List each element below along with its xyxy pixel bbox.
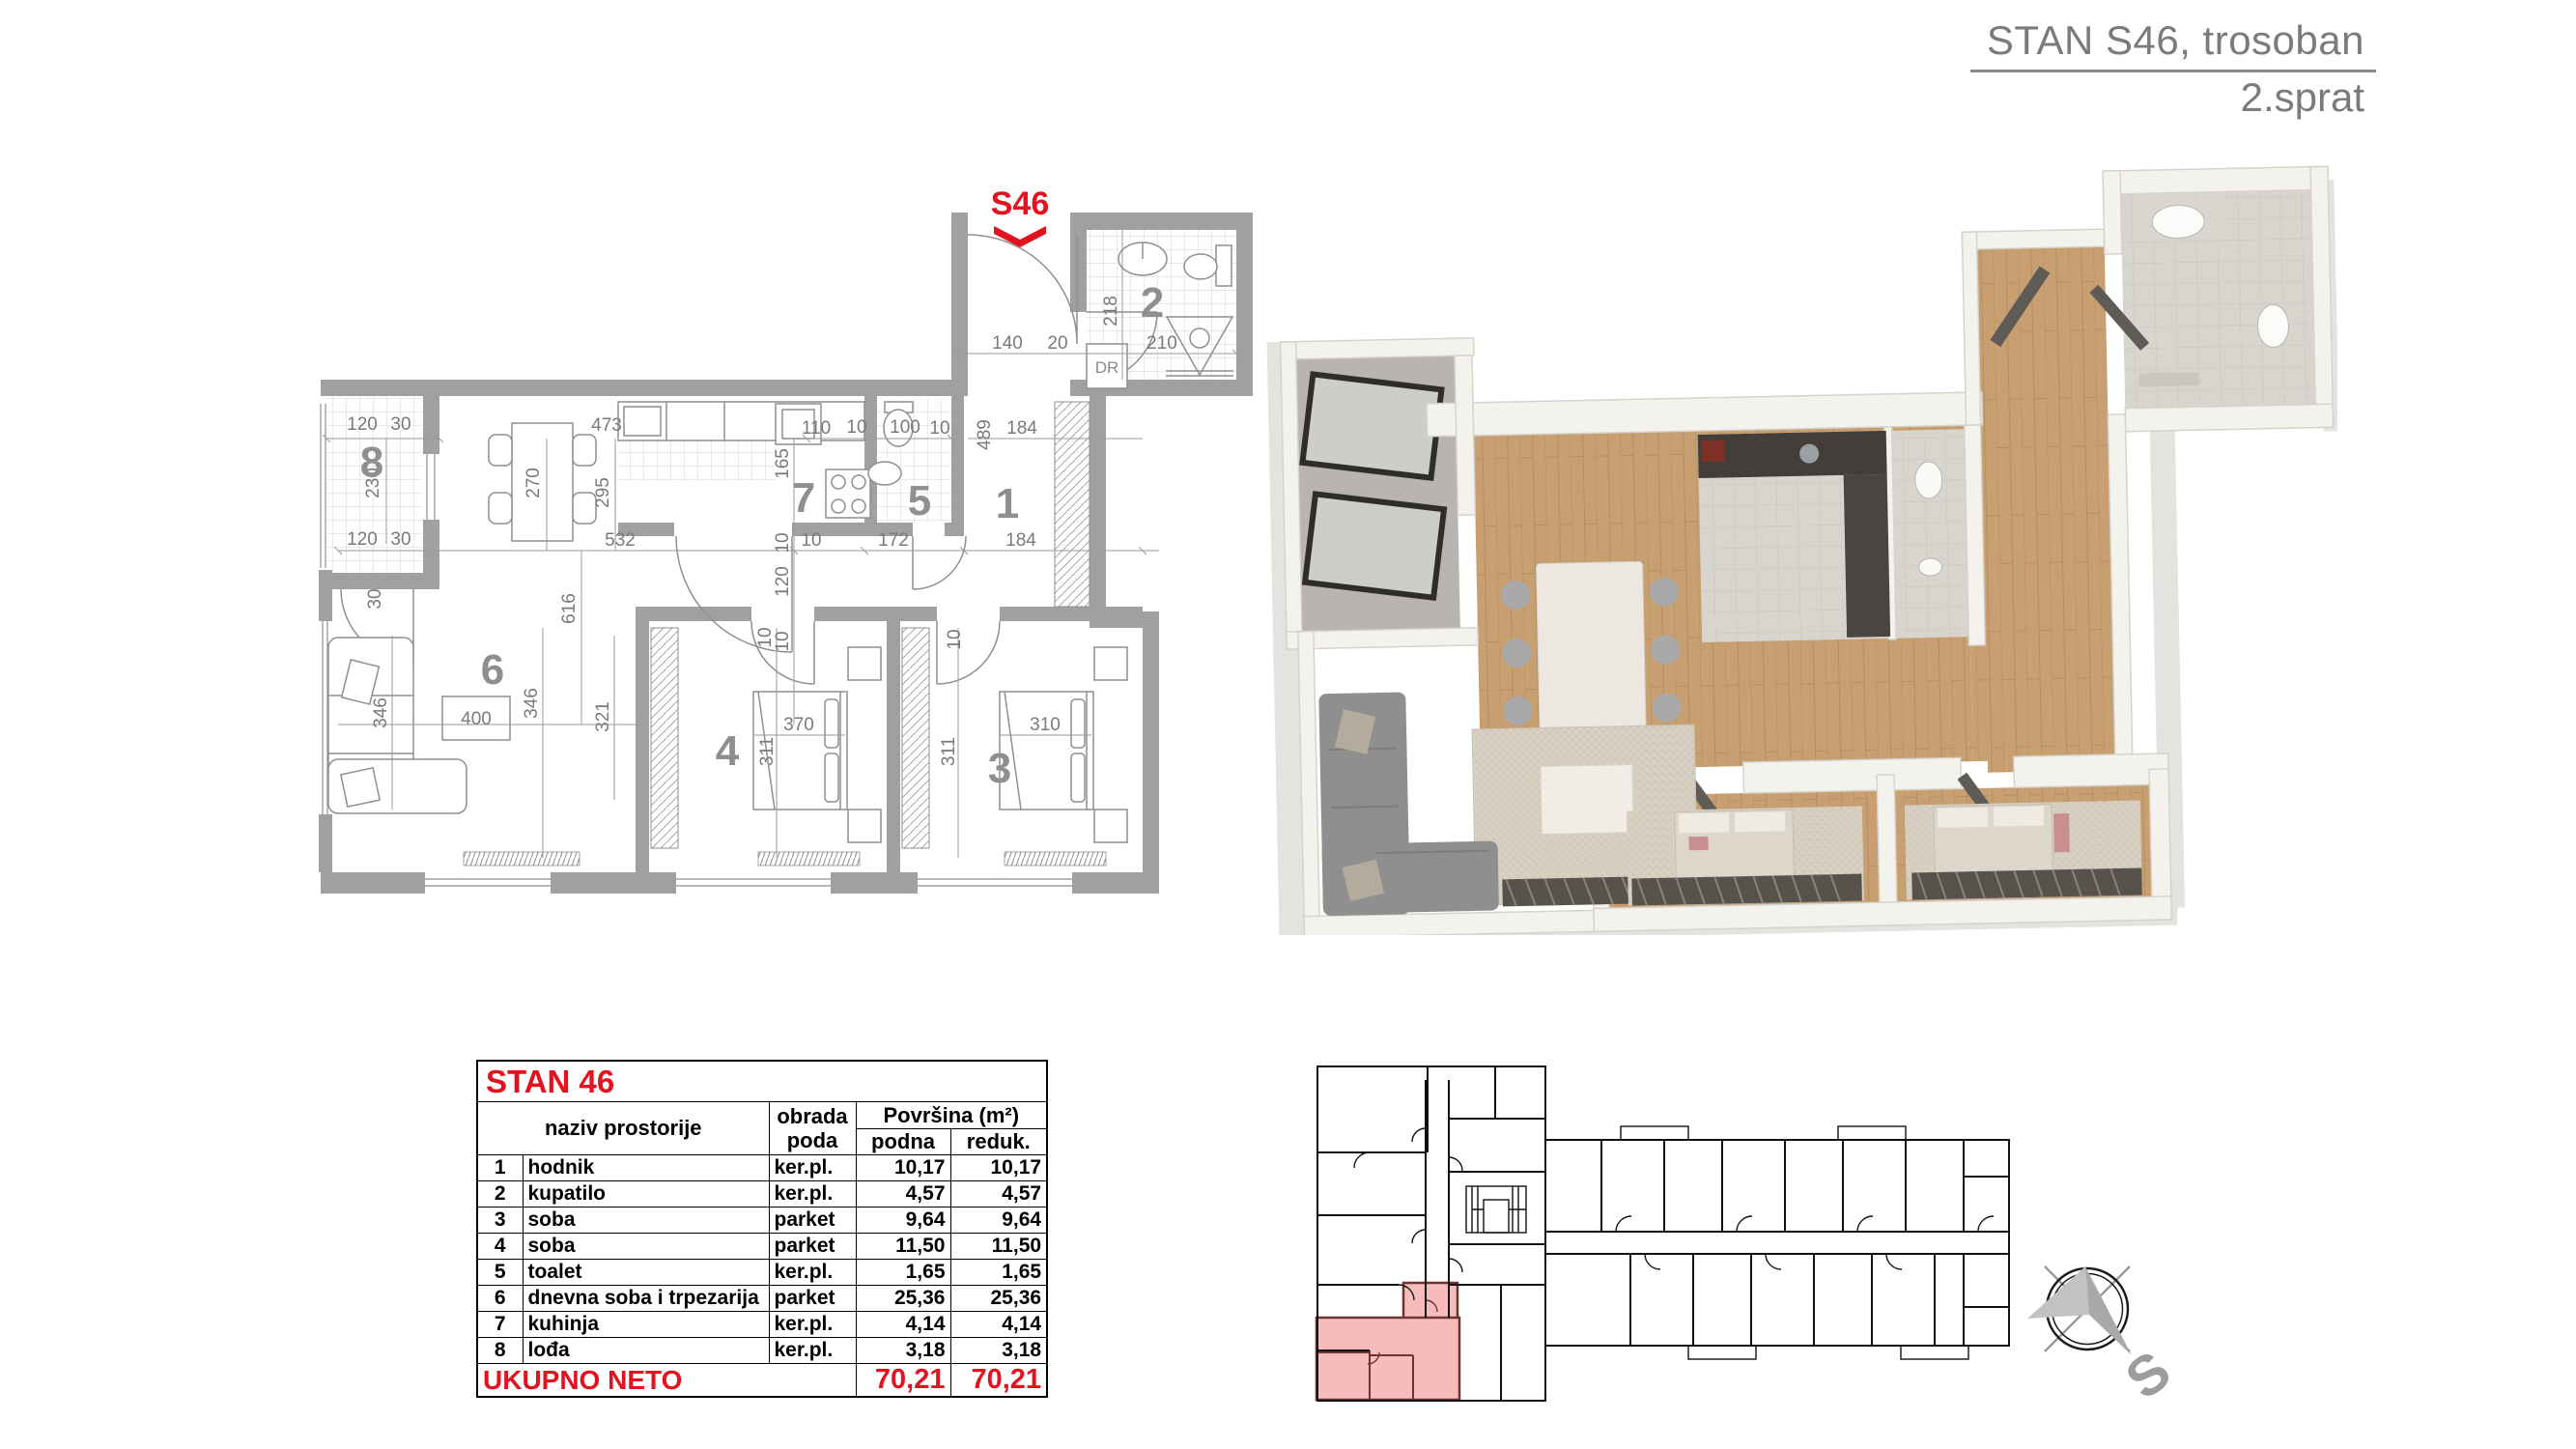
cell-num: 2 xyxy=(477,1181,523,1207)
unit-marker: S46 xyxy=(991,185,1050,247)
cell-name: hodnik xyxy=(523,1155,769,1181)
hall-floor xyxy=(1977,246,2115,773)
cell-podna: 10,17 xyxy=(856,1155,950,1181)
cell-reduk: 11,50 xyxy=(950,1234,1047,1260)
svg-text:184: 184 xyxy=(1006,418,1037,439)
svg-text:295: 295 xyxy=(593,477,613,508)
svg-text:210: 210 xyxy=(1146,333,1177,354)
table-row: 4sobaparket11,5011,50 xyxy=(477,1234,1047,1260)
table-row: 6dnevna soba i trpezarijaparket25,3625,3… xyxy=(477,1286,1047,1312)
cell-name: toalet xyxy=(523,1260,769,1286)
cell-podna: 4,57 xyxy=(856,1181,950,1207)
cell-name: kuhinja xyxy=(523,1312,769,1338)
cell-name: soba xyxy=(523,1234,769,1260)
cell-podna: 3,18 xyxy=(856,1338,950,1364)
cell-floor: ker.pl. xyxy=(769,1181,856,1207)
cell-reduk: 25,36 xyxy=(950,1286,1047,1312)
cell-reduk: 4,14 xyxy=(950,1312,1047,1338)
svg-text:10: 10 xyxy=(773,532,793,553)
svg-text:140: 140 xyxy=(992,333,1023,354)
room-6-dnevna: 6 xyxy=(481,646,504,694)
table-row: 3sobaparket9,649,64 xyxy=(477,1207,1047,1234)
cell-reduk: 1,65 xyxy=(950,1260,1047,1286)
cell-name: kupatilo xyxy=(523,1181,769,1207)
cell-reduk: 3,18 xyxy=(950,1338,1047,1364)
svg-text:100: 100 xyxy=(890,417,920,438)
room-5-toalet: 5 xyxy=(908,477,931,525)
cell-floor: ker.pl. xyxy=(769,1312,856,1338)
room-7-kuhinja: 7 xyxy=(792,474,815,522)
svg-text:10: 10 xyxy=(773,631,793,651)
svg-text:311: 311 xyxy=(757,737,778,766)
cell-podna: 11,50 xyxy=(856,1234,950,1260)
col-header-povrsina: Površina (m²) xyxy=(856,1102,1047,1129)
cell-floor: parket xyxy=(769,1234,856,1260)
svg-text:616: 616 xyxy=(559,593,580,624)
svg-text:321: 321 xyxy=(593,701,613,732)
svg-text:489: 489 xyxy=(975,419,995,450)
room-2-kupatilo: 2 xyxy=(1141,279,1164,327)
cell-num: 8 xyxy=(477,1338,523,1364)
cell-podna: 9,64 xyxy=(856,1207,950,1234)
cell-podna: 25,36 xyxy=(856,1286,950,1312)
svg-text:10: 10 xyxy=(929,418,949,439)
compass-icon xyxy=(2027,1266,2132,1355)
svg-text:172: 172 xyxy=(878,530,909,551)
svg-text:270: 270 xyxy=(524,468,544,498)
svg-text:473: 473 xyxy=(591,415,622,436)
table-row: 2kupatiloker.pl.4,574,57 xyxy=(477,1181,1047,1207)
plan-sheet: STAN S46, trosoban 2.sprat xyxy=(0,0,2576,1449)
svg-text:30: 30 xyxy=(365,588,385,609)
room-3-soba: 3 xyxy=(988,745,1011,792)
floor-label: 2.sprat xyxy=(1970,74,2376,121)
bedroom-a xyxy=(1627,807,1864,906)
closet-label: DR xyxy=(1095,358,1119,377)
kitchen-counter-tiles xyxy=(618,440,776,481)
cell-name: soba xyxy=(523,1207,769,1234)
table-row: 5toaletker.pl.1,651,65 xyxy=(477,1260,1047,1286)
svg-text:165: 165 xyxy=(773,448,793,479)
cell-floor: ker.pl. xyxy=(769,1338,856,1364)
svg-text:120: 120 xyxy=(773,566,793,597)
cell-name: dnevna soba i trpezarija xyxy=(523,1286,769,1312)
svg-text:20: 20 xyxy=(1047,333,1067,354)
area-table-body: 1hodnikker.pl.10,1710,172kupatiloker.pl.… xyxy=(477,1155,1047,1364)
svg-text:10: 10 xyxy=(846,417,866,438)
total-label: UKUPNO NETO xyxy=(477,1364,856,1398)
svg-text:532: 532 xyxy=(605,530,636,551)
svg-text:110: 110 xyxy=(802,418,831,439)
room-8-lodja: 8 xyxy=(360,439,383,486)
highlighted-unit xyxy=(1316,1283,1459,1400)
cell-name: lođa xyxy=(523,1338,769,1364)
svg-text:120: 120 xyxy=(347,414,378,435)
room-4-soba: 4 xyxy=(716,727,740,775)
key-plan xyxy=(1312,1061,2017,1423)
svg-text:30: 30 xyxy=(390,414,410,435)
col-header-reduk: reduk. xyxy=(950,1129,1047,1155)
cell-podna: 4,14 xyxy=(856,1312,950,1338)
cell-reduk: 4,57 xyxy=(950,1181,1047,1207)
title-rule xyxy=(1970,70,2376,72)
svg-text:10: 10 xyxy=(945,629,965,649)
svg-text:218: 218 xyxy=(1101,296,1121,327)
cell-num: 7 xyxy=(477,1312,523,1338)
col-header-obrada: obradapoda xyxy=(769,1102,856,1155)
col-header-podna: podna xyxy=(856,1129,950,1155)
table-title: STAN 46 xyxy=(477,1061,1047,1102)
title-block: STAN S46, trosoban 2.sprat xyxy=(1970,17,2376,121)
toilet-floor-3d xyxy=(1889,429,1970,639)
svg-text:30: 30 xyxy=(390,529,410,550)
cell-podna: 1,65 xyxy=(856,1260,950,1286)
svg-text:346: 346 xyxy=(522,688,542,719)
floor-plan-2d: 120 30 230 120 30 30 473 270 295 532 616… xyxy=(319,182,1256,916)
area-table: STAN 46 naziv prostorije obradapoda Povr… xyxy=(476,1060,1048,1398)
svg-text:310: 310 xyxy=(1030,715,1061,735)
cell-floor: parket xyxy=(769,1207,856,1234)
svg-text:184: 184 xyxy=(1005,530,1036,551)
dining-set xyxy=(1500,560,1682,743)
page-title: STAN S46, trosoban xyxy=(1970,17,2376,64)
compass: S xyxy=(2024,1241,2217,1435)
total-podna: 70,21 xyxy=(856,1364,950,1398)
col-header-naziv: naziv prostorije xyxy=(477,1102,769,1155)
bedroom-b xyxy=(1905,801,2142,900)
cell-floor: parket xyxy=(769,1286,856,1312)
table-row: 8lođaker.pl.3,183,18 xyxy=(477,1338,1047,1364)
unit-arrow-icon xyxy=(994,226,1046,247)
radiators xyxy=(464,852,1106,866)
cell-num: 3 xyxy=(477,1207,523,1234)
cell-reduk: 9,64 xyxy=(950,1207,1047,1234)
cell-floor: ker.pl. xyxy=(769,1260,856,1286)
svg-text:10: 10 xyxy=(801,530,821,551)
table-row: 1hodnikker.pl.10,1710,17 xyxy=(477,1155,1047,1181)
svg-text:346: 346 xyxy=(371,697,391,728)
cell-num: 5 xyxy=(477,1260,523,1286)
cell-reduk: 10,17 xyxy=(950,1155,1047,1181)
svg-text:400: 400 xyxy=(461,709,492,729)
svg-text:311: 311 xyxy=(939,737,959,766)
cell-num: 1 xyxy=(477,1155,523,1181)
compass-south-label: S xyxy=(2114,1339,2183,1411)
key-plan-right-wing xyxy=(1545,1126,2009,1359)
table-row: 7kuhinjaker.pl.4,144,14 xyxy=(477,1312,1047,1338)
unit-label: S46 xyxy=(991,185,1050,222)
svg-text:120: 120 xyxy=(347,529,378,550)
floor-plan-3d xyxy=(1246,143,2337,935)
svg-text:370: 370 xyxy=(783,715,814,735)
cell-num: 6 xyxy=(477,1286,523,1312)
svg-text:10: 10 xyxy=(755,627,776,647)
room-1-hodnik: 1 xyxy=(996,480,1019,527)
cell-num: 4 xyxy=(477,1234,523,1260)
total-reduk: 70,21 xyxy=(950,1364,1047,1398)
cell-floor: ker.pl. xyxy=(769,1155,856,1181)
